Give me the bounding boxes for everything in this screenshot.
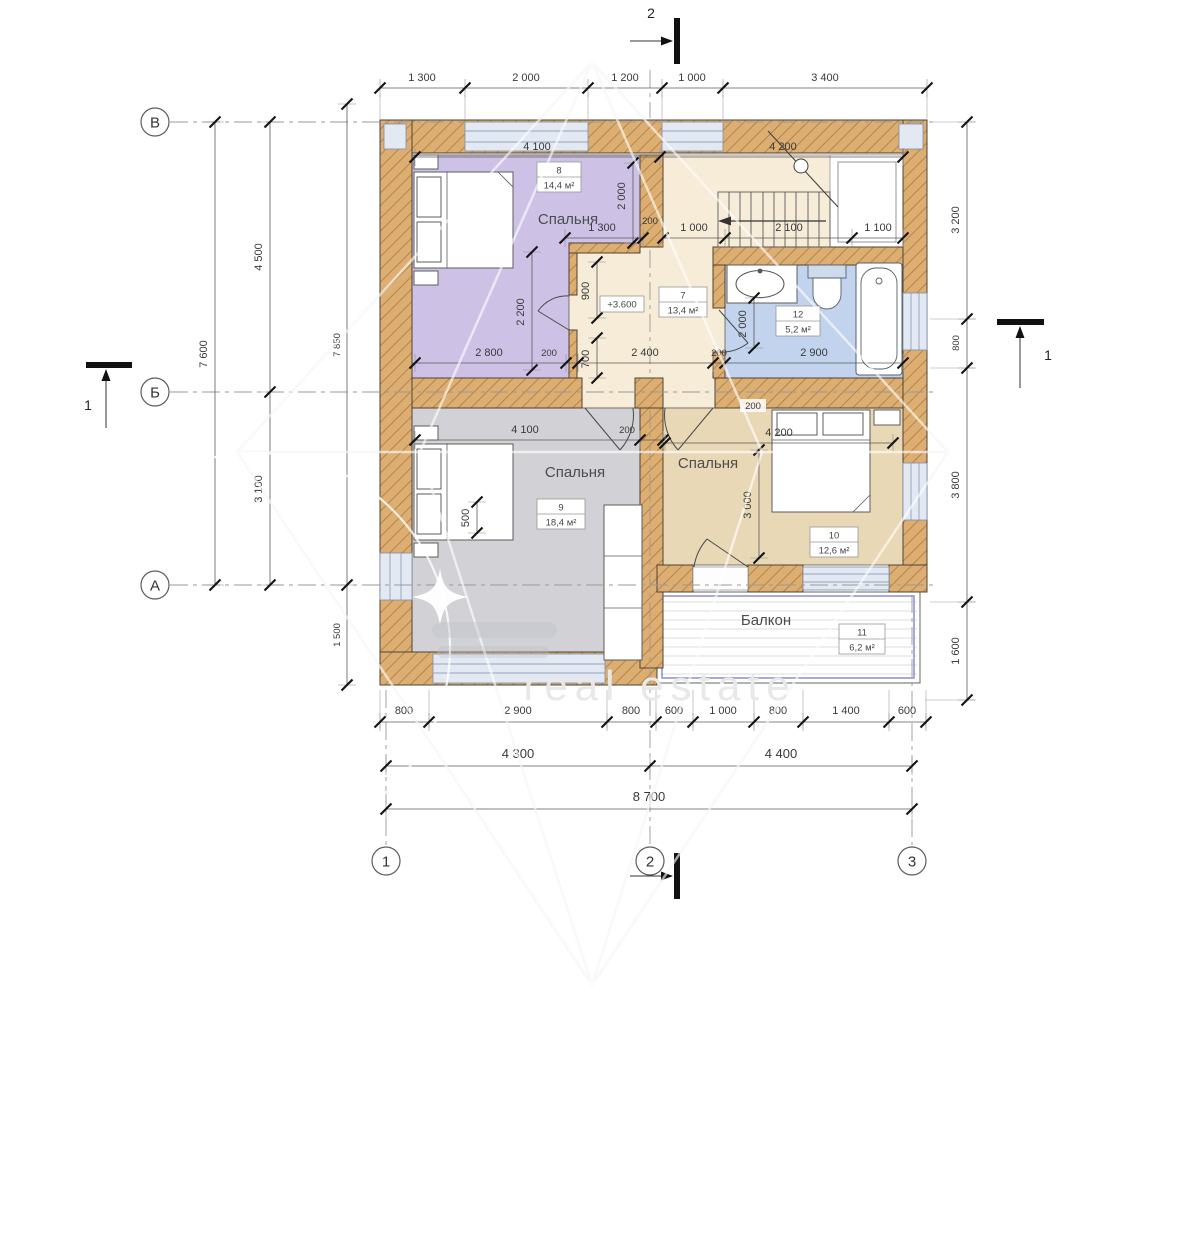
- section-label: 1: [84, 397, 92, 413]
- watermark-logo-blur: [437, 646, 549, 658]
- nightstand: [874, 410, 900, 425]
- dim-label: 500: [460, 509, 472, 527]
- window-bedroom10-balcony: [803, 567, 889, 590]
- window-hall-top: [662, 122, 723, 151]
- bathroom-sink: [727, 265, 797, 303]
- watermark-text: real estate: [523, 662, 796, 709]
- axis-circle-1: 1: [372, 847, 400, 875]
- section-label: 2: [647, 5, 655, 21]
- room-number: 12: [793, 310, 804, 321]
- room-area: 12,6 м²: [819, 546, 850, 557]
- room-number: 8: [556, 166, 561, 177]
- dim-label: 1 500: [332, 623, 343, 647]
- dim-label: 7 600: [198, 340, 210, 368]
- dim-label: 2 000: [512, 72, 540, 84]
- dim-label: 4 200: [765, 427, 793, 439]
- room-number: 10: [829, 531, 840, 542]
- corner-window-topright: [899, 124, 923, 149]
- dim-label: 1 300: [408, 72, 436, 84]
- axis-circle-3: 3: [898, 847, 926, 875]
- dim-label: 1 000: [680, 222, 708, 234]
- section-marker-2-top: 2: [630, 5, 680, 64]
- dim-label: 200: [642, 216, 658, 227]
- dim-label: 600: [898, 705, 916, 717]
- dim-label: 8 700: [633, 789, 666, 804]
- dim-label: 200: [619, 425, 635, 436]
- axis-circle-b: Б: [141, 378, 169, 406]
- watermark-logo-blur: [432, 622, 557, 638]
- room-name-bedroom9: Спальня: [545, 464, 605, 481]
- axis-circle-v: В: [141, 108, 169, 136]
- dim-label: 1 200: [611, 72, 639, 84]
- room-tag-8: 8 14,4 м²: [537, 162, 581, 192]
- dim-label: 2 000: [737, 310, 749, 338]
- dim-label: 2 800: [475, 347, 503, 359]
- room-tag-9: 9 18,4 м²: [537, 499, 585, 529]
- room-area: 14,4 м²: [544, 181, 575, 192]
- corner-window-topleft: [384, 124, 406, 149]
- dim-label: 4 100: [511, 424, 539, 436]
- dim-label: 1 000: [678, 72, 706, 84]
- axis-label-1: 1: [382, 854, 390, 871]
- window-bedroom10-right: [903, 463, 927, 520]
- bed-bedroom9: [414, 426, 513, 557]
- dim-label: 3 800: [950, 471, 962, 499]
- dim-label: 2 900: [800, 347, 828, 359]
- axis-label-3: 3: [908, 854, 916, 871]
- dim-label: 4 200: [769, 141, 797, 153]
- section-label: 1: [1044, 347, 1052, 363]
- room-tag-12: 12 5,2 м²: [776, 306, 820, 336]
- room-area: 5,2 м²: [785, 325, 811, 336]
- wall-bath-top: [713, 247, 903, 265]
- room-name-bedroom10: Спальня: [678, 455, 738, 472]
- room-tag-7: 7 13,4 м²: [659, 287, 707, 317]
- room-number: 11: [857, 628, 867, 639]
- dim-label: 2 200: [515, 298, 527, 326]
- dim-label: 4 400: [765, 746, 798, 761]
- room-area: 13,4 м²: [668, 306, 699, 317]
- dim-label: 3 200: [950, 206, 962, 234]
- nightstand: [414, 271, 438, 285]
- axis-label-2: 2: [646, 854, 654, 871]
- room-tag-11: 11 6,2 м²: [839, 624, 885, 654]
- dim-label: 3 400: [811, 72, 839, 84]
- section-marker-1-right: 1: [997, 319, 1052, 388]
- dim-label: 2 000: [616, 182, 628, 210]
- dim-label: 800: [951, 335, 962, 351]
- dim-label: 200: [541, 348, 557, 359]
- axis-label-v: В: [150, 115, 160, 132]
- axis-circle-a: А: [141, 571, 169, 599]
- room-number: 7: [680, 291, 685, 302]
- wardrobe-bedroom9: [604, 505, 642, 660]
- room-tag-10: 10 12,6 м²: [810, 527, 858, 557]
- wall-top: [380, 120, 927, 153]
- window-bathroom-right: [903, 293, 927, 350]
- dim-label: 2 400: [631, 347, 659, 359]
- room-name-balcony: Балкон: [741, 612, 791, 629]
- room-area: 6,2 м²: [849, 643, 875, 654]
- bed-bedroom8: [414, 155, 513, 285]
- level-mark: +3.600: [600, 296, 644, 312]
- axis-label-b: Б: [150, 385, 160, 402]
- dim-label: 200: [745, 401, 761, 412]
- window-bedroom9-left: [380, 553, 412, 600]
- room-area: 18,4 м²: [546, 518, 577, 529]
- floor-plan-drawing: В Б А 1 2 3 1 300 2 000 1 200 1 00: [0, 0, 1202, 1234]
- room-number: 9: [558, 503, 563, 514]
- section-marker-1-left: 1: [84, 362, 132, 428]
- room-name-bedroom8: Спальня: [538, 211, 598, 228]
- dim-label: 1 400: [832, 705, 860, 717]
- axis-label-a: А: [150, 578, 160, 595]
- dim-label: 1 100: [864, 222, 892, 234]
- dim-label: 2 100: [775, 222, 803, 234]
- level-mark-value: +3.600: [607, 300, 636, 311]
- dim-label: 1 600: [950, 637, 962, 665]
- axis-circle-2: 2: [636, 847, 664, 875]
- dim-label: 900: [580, 282, 592, 300]
- wall-right: [903, 120, 927, 592]
- dim-label: 4 100: [523, 141, 551, 153]
- dim-label: 4 500: [253, 243, 265, 271]
